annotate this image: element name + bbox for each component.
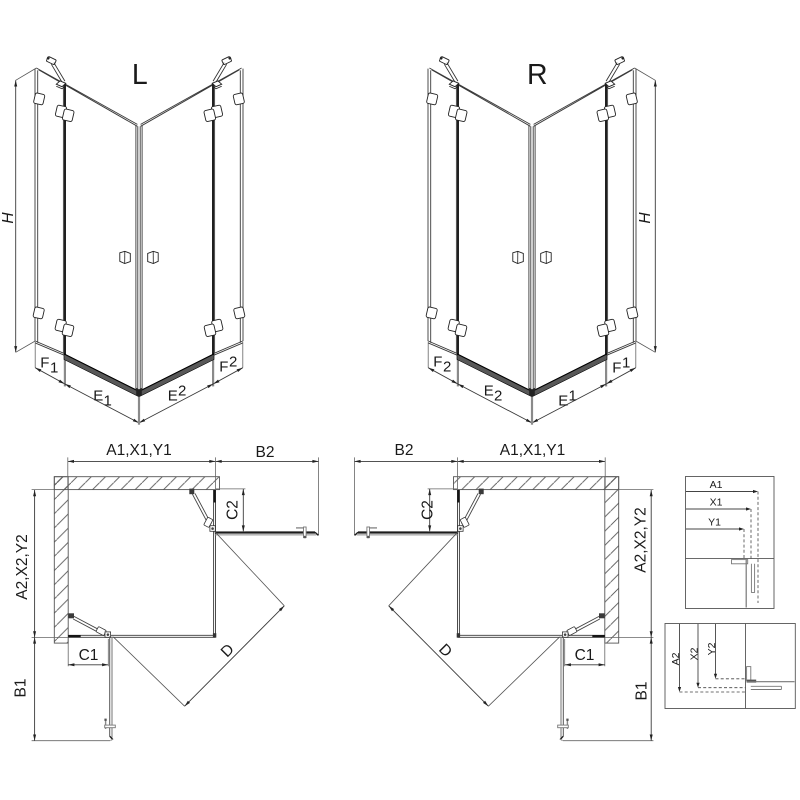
svg-text:1: 1	[50, 360, 58, 377]
svg-text:C1: C1	[575, 647, 595, 664]
svg-text:1: 1	[569, 388, 577, 405]
svg-text:Y1: Y1	[708, 517, 721, 529]
svg-text:H: H	[637, 212, 654, 224]
svg-text:2: 2	[178, 383, 186, 400]
svg-text:2: 2	[443, 359, 451, 376]
svg-text:A1: A1	[710, 479, 723, 491]
svg-text:2: 2	[229, 354, 237, 371]
svg-text:F: F	[433, 354, 442, 371]
svg-text:E: E	[558, 393, 568, 410]
svg-text:C2: C2	[225, 500, 242, 520]
svg-text:F: F	[219, 359, 228, 376]
svg-text:L: L	[132, 59, 148, 91]
svg-text:F: F	[40, 355, 49, 372]
svg-text:B1: B1	[13, 679, 30, 698]
svg-text:1: 1	[622, 355, 630, 372]
svg-text:B1: B1	[634, 682, 651, 701]
svg-text:E: E	[168, 388, 178, 405]
svg-text:D: D	[218, 641, 238, 661]
svg-text:B2: B2	[395, 442, 414, 459]
svg-text:1: 1	[104, 393, 112, 410]
svg-text:A1,X1,Y1: A1,X1,Y1	[106, 442, 172, 459]
svg-text:X2: X2	[689, 647, 701, 660]
svg-text:C2: C2	[420, 500, 437, 520]
svg-text:E: E	[484, 383, 494, 400]
svg-text:X1: X1	[710, 497, 723, 509]
svg-text:2: 2	[494, 388, 502, 405]
svg-text:A1,X1,Y1: A1,X1,Y1	[500, 442, 566, 459]
svg-text:C1: C1	[79, 647, 99, 664]
svg-text:D: D	[435, 641, 455, 661]
svg-text:H: H	[0, 212, 17, 224]
svg-text:E: E	[93, 388, 103, 405]
svg-text:B2: B2	[256, 444, 275, 461]
svg-text:R: R	[527, 59, 548, 91]
svg-text:F: F	[612, 360, 621, 377]
svg-text:Y2: Y2	[706, 642, 718, 655]
svg-text:A2,X2,Y2: A2,X2,Y2	[633, 507, 650, 573]
svg-text:A2: A2	[670, 652, 682, 665]
svg-text:A2,X2,Y2: A2,X2,Y2	[14, 534, 31, 600]
